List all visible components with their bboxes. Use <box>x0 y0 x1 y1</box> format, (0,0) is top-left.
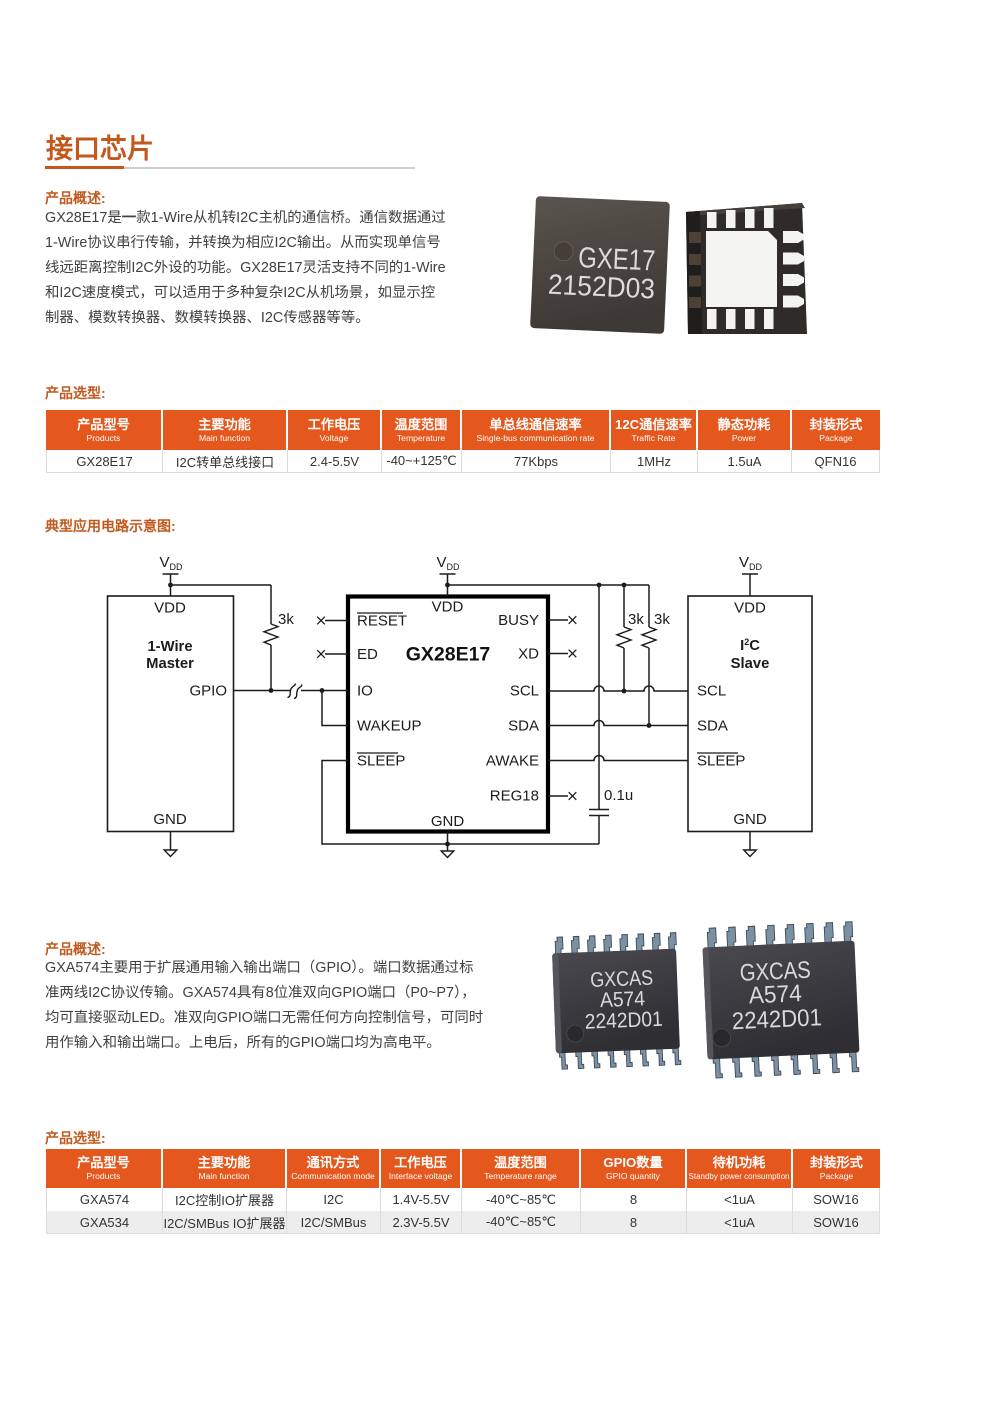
svg-text:GX28E17: GX28E17 <box>406 644 491 666</box>
svg-text:VDD: VDD <box>734 600 766 617</box>
svg-text:GND: GND <box>431 813 465 830</box>
svg-text:GND: GND <box>153 811 187 828</box>
svg-text:BUSY: BUSY <box>498 612 539 629</box>
svg-text:3k: 3k <box>654 611 670 628</box>
svg-text:I2C: I2C <box>740 637 760 654</box>
svg-text:1-Wire: 1-Wire <box>147 639 192 655</box>
svg-text:VDD: VDD <box>154 600 186 617</box>
svg-text:IO: IO <box>357 683 373 700</box>
svg-text:SDA: SDA <box>697 718 728 735</box>
svg-text:REG18: REG18 <box>490 788 539 805</box>
svg-text:SCL: SCL <box>697 683 726 700</box>
svg-text:Slave: Slave <box>731 656 770 672</box>
svg-text:3k: 3k <box>278 611 294 628</box>
svg-text:3k: 3k <box>628 611 644 628</box>
svg-text:WAKEUP: WAKEUP <box>357 718 421 735</box>
svg-text:Master: Master <box>146 656 194 672</box>
svg-text:GPIO: GPIO <box>189 683 227 700</box>
svg-text:ED: ED <box>357 646 378 663</box>
svg-text:AWAKE: AWAKE <box>486 753 539 770</box>
svg-text:0.1u: 0.1u <box>604 787 633 804</box>
svg-text:SDA: SDA <box>508 718 539 735</box>
svg-text:VDD: VDD <box>437 554 461 572</box>
svg-text:SLEEP: SLEEP <box>357 753 405 770</box>
svg-text:VDD: VDD <box>432 599 464 616</box>
svg-text:XD: XD <box>518 645 539 662</box>
svg-text:VDD: VDD <box>160 554 184 572</box>
svg-text:SLEEP: SLEEP <box>697 753 745 770</box>
svg-text:VDD: VDD <box>739 554 763 572</box>
svg-text:GND: GND <box>733 811 767 828</box>
svg-text:SCL: SCL <box>510 683 539 700</box>
svg-text:2242D01: 2242D01 <box>584 1008 663 1034</box>
svg-text:2242D01: 2242D01 <box>731 1004 822 1035</box>
svg-text:2152D03: 2152D03 <box>547 269 655 305</box>
svg-text:RESET: RESET <box>357 613 407 630</box>
